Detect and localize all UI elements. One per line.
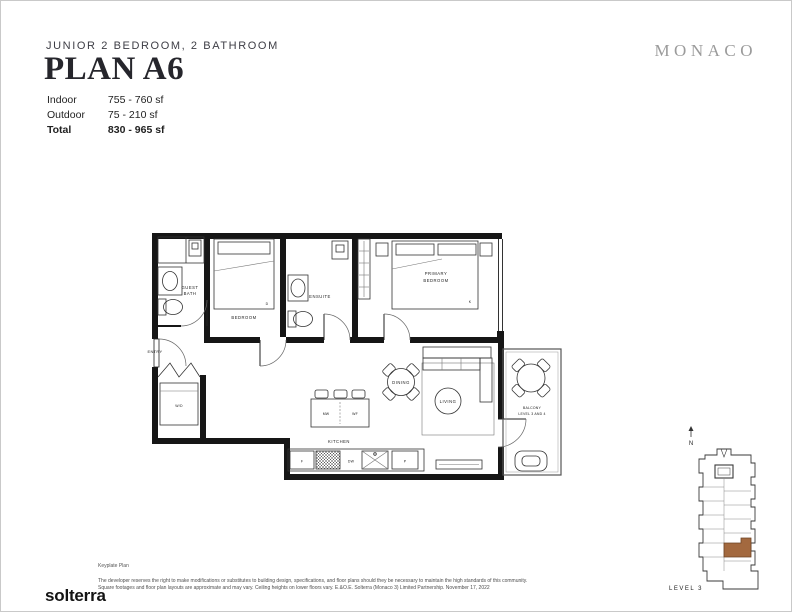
microwave-label: MW [323, 412, 330, 416]
developer-logo: solterra [45, 586, 106, 606]
fridge-label: F [301, 460, 303, 464]
kitchen-label: KITCHEN [328, 439, 350, 444]
window [499, 239, 503, 331]
area-stats: Indoor 755 - 760 sf Outdoor 75 - 210 sf … [47, 93, 165, 138]
bedroom: D BEDROOM [214, 239, 274, 320]
sink-icon [291, 279, 305, 297]
ottoman-icon [515, 451, 547, 471]
dishwasher-label: DW [348, 460, 355, 464]
bed-size-marker: D [266, 302, 269, 306]
chair-icon [406, 387, 420, 401]
entry: ENTRY [148, 349, 163, 354]
entry-label: ENTRY [148, 349, 163, 354]
primary-bedroom-door [384, 314, 410, 340]
washer-dryer-label: W/D [175, 404, 183, 408]
brand-logo: MONACO [654, 41, 757, 61]
building-outline-icon [699, 449, 758, 589]
north-arrow-icon: N [689, 426, 694, 447]
ensuite-door [324, 314, 350, 340]
stool-icon [334, 390, 347, 398]
laundry-closet: W/D [158, 363, 200, 425]
chair-icon [511, 358, 525, 372]
balcony: BALCONY LEVEL 3 AND 4 [503, 349, 561, 475]
stat-value: 75 - 210 sf [108, 109, 158, 121]
balcony-door [498, 419, 526, 447]
guest-bath: GUEST BATH [158, 237, 204, 315]
bed-icon [214, 239, 274, 309]
balcony-label: LEVEL 3 AND 4 [518, 412, 545, 416]
range-icon [316, 451, 340, 469]
pillow-icon [438, 244, 476, 255]
chair-icon [406, 363, 420, 377]
pillow-icon [396, 244, 434, 255]
dining-label: DINING [392, 380, 410, 385]
toilet-tank-icon [158, 299, 166, 315]
balcony-label: BALCONY [523, 406, 542, 410]
plan-title: PLAN A6 [44, 51, 184, 88]
chair-icon [382, 387, 396, 401]
stat-row-total: Total 830 - 965 sf [47, 123, 165, 138]
keyplate: N LEVEL 3 [661, 425, 771, 603]
bedroom-label: BEDROOM [231, 315, 256, 320]
guest-bath-label: BATH [184, 291, 197, 296]
stat-value: 755 - 760 sf [108, 94, 163, 106]
level-label: LEVEL 3 [669, 586, 703, 592]
bedroom-door [260, 340, 286, 366]
chair-icon [537, 358, 551, 372]
sofa-back-icon [423, 347, 491, 358]
wine-fridge-label: WF [352, 412, 358, 416]
north-label: N [689, 441, 693, 447]
primary-bedroom: PRIMARY BEDROOM K [358, 239, 492, 309]
stat-row-outdoor: Outdoor 75 - 210 sf [47, 108, 165, 123]
primary-bedroom-label: PRIMARY [425, 271, 448, 276]
stat-row-indoor: Indoor 755 - 760 sf [47, 93, 165, 108]
ensuite: ENSUITE [288, 241, 348, 327]
primary-bedroom-label: BEDROOM [423, 278, 448, 283]
floorplan-sheet: JUNIOR 2 BEDROOM, 2 BATHROOM PLAN A6 MON… [0, 0, 792, 612]
chaise-icon [480, 358, 492, 402]
disclaimer-line-2: Square footages and floor plan layouts a… [98, 585, 490, 591]
keyplate-caption: Keyplate Plan [98, 563, 129, 569]
living-label: LIVING [440, 399, 457, 404]
living: LIVING [422, 347, 494, 469]
stool-icon [315, 390, 328, 398]
stat-label: Total [47, 123, 105, 138]
stat-label: Outdoor [47, 108, 105, 123]
shower-fixture-icon [332, 241, 348, 259]
stool-icon [352, 390, 365, 398]
chair-icon [537, 384, 551, 398]
dining: DINING [382, 363, 420, 401]
bed-size-marker: K [469, 300, 472, 304]
rug-icon [422, 363, 494, 435]
ensuite-label: ENSUITE [309, 294, 331, 299]
kitchen: MW WF KITCHEN F DW P [288, 390, 424, 471]
shower-fixture-icon [189, 240, 201, 256]
pillow-icon [218, 242, 270, 254]
sink-icon [163, 272, 178, 291]
faucet-icon [374, 453, 377, 456]
disclaimer-line-1: The developer reserves the right to make… [98, 578, 527, 584]
guest-bath-door [181, 300, 207, 326]
chair-icon [382, 363, 396, 377]
nightstand-icon [480, 243, 492, 256]
highlighted-unit [724, 538, 751, 557]
guest-bath-label: GUEST [182, 285, 199, 290]
bifold-door-icon [158, 363, 200, 377]
nightstand-icon [376, 243, 388, 256]
pantry-label: P [404, 460, 407, 464]
chair-icon [511, 384, 525, 398]
sofa-seat-icon [423, 358, 480, 370]
stat-label: Indoor [47, 93, 105, 108]
floor-plan: GUEST BATH D BEDROOM ENSUITE [146, 227, 571, 485]
toilet-tank-icon [288, 311, 296, 327]
stat-value: 830 - 965 sf [108, 124, 165, 136]
